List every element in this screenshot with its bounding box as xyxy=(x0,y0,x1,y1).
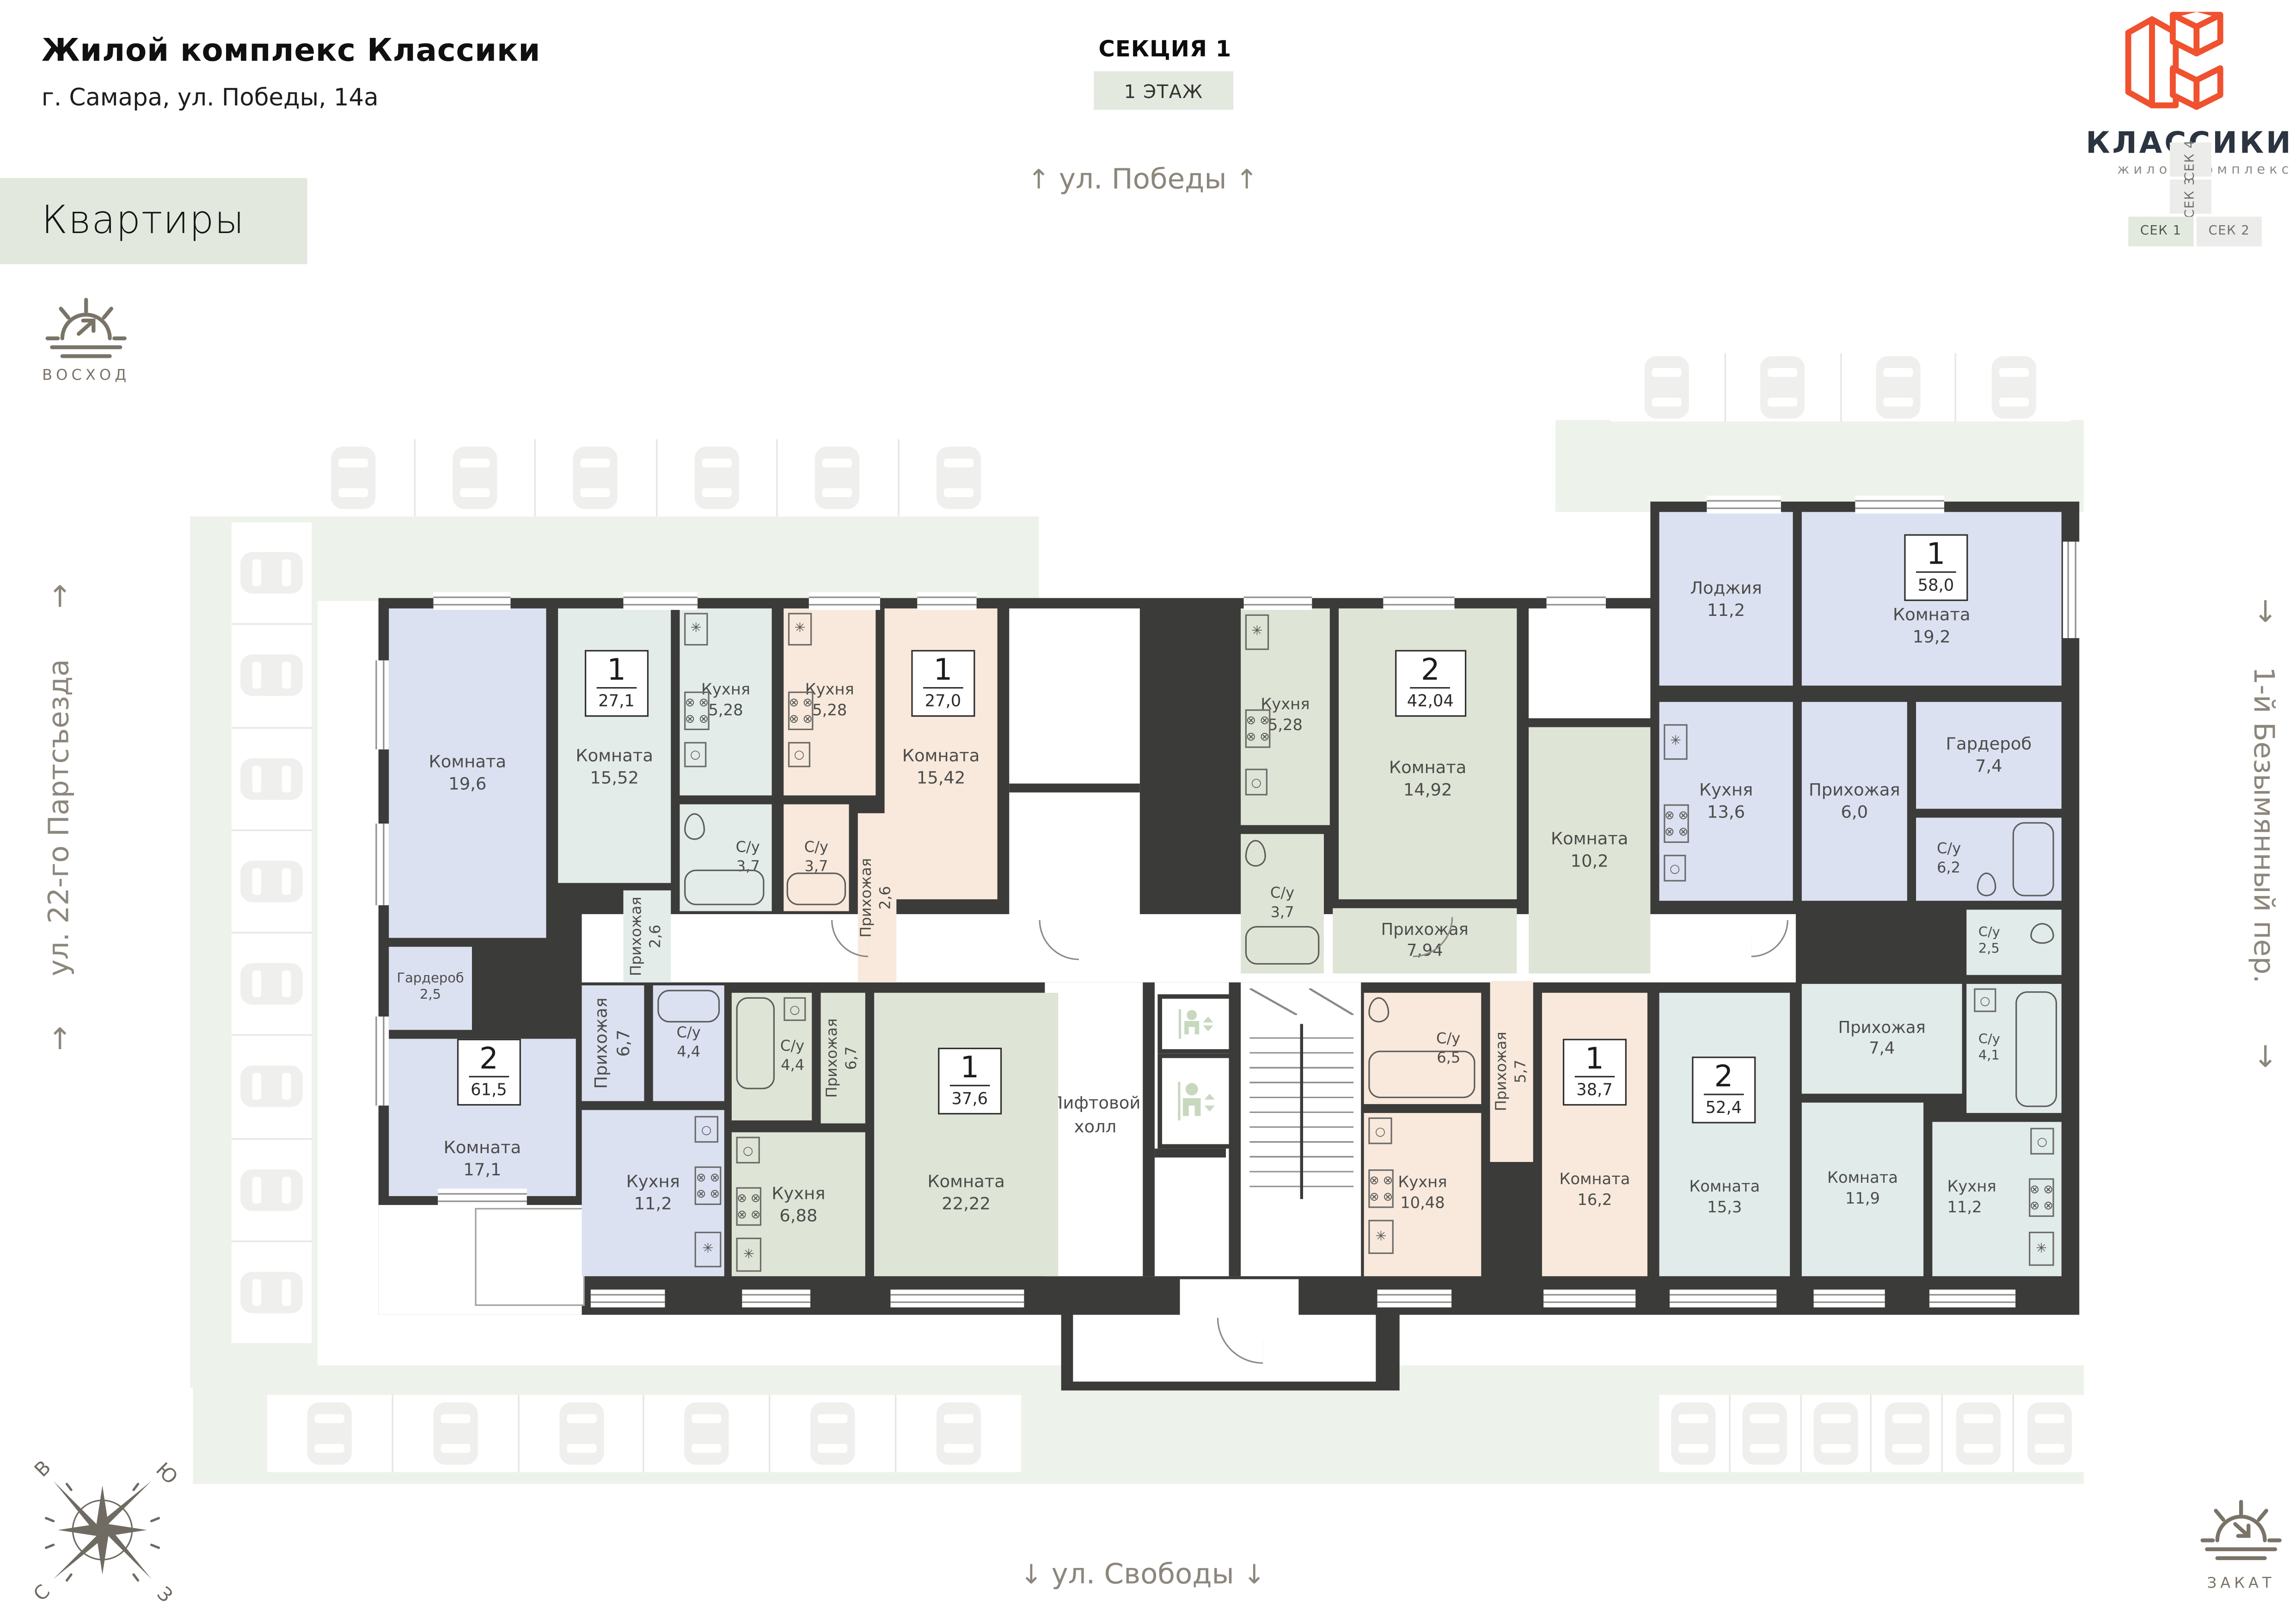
car-icon xyxy=(240,860,303,902)
car-icon xyxy=(1876,356,1920,418)
sink-icon xyxy=(788,742,810,768)
sink-icon xyxy=(1245,769,1267,796)
room-52_4-komnata-11_9[interactable]: Комната 11,9 xyxy=(1802,1103,1923,1277)
car-icon xyxy=(936,447,980,509)
parking-stall xyxy=(232,829,312,932)
street-bottom: ↓ ул. Свободы ↓ xyxy=(950,1558,1336,1591)
car-icon xyxy=(1814,1402,1858,1465)
street-right: 1-й Безымянный пер. xyxy=(2247,617,2280,1033)
utility-room xyxy=(1529,608,1650,719)
elevator-shaft-2 xyxy=(1157,1054,1235,1149)
badge-37_6[interactable]: 1 37,6 xyxy=(938,1048,1001,1114)
bathtub-icon xyxy=(1368,1051,1475,1098)
sink-icon xyxy=(784,997,806,1021)
window xyxy=(2063,541,2081,638)
window xyxy=(1543,1290,1635,1308)
parking-stall xyxy=(643,1395,769,1472)
arrow-down-icon: ↓ xyxy=(2253,1039,2278,1075)
sunset-icon xyxy=(2199,1496,2283,1567)
lift-hall-line2: холл xyxy=(1048,1115,1143,1138)
street-right-label: 1-й Безымянный пер. xyxy=(2247,667,2280,983)
parking-stall xyxy=(267,1395,392,1472)
room-27_1-prihozhaya[interactable]: Прихожая2,6 xyxy=(623,891,671,983)
room-37_6-komnata[interactable]: Комната 22,22 xyxy=(874,993,1058,1276)
section-button-3[interactable]: СЕК 3 xyxy=(2170,179,2211,214)
window xyxy=(623,592,698,610)
stove-icon xyxy=(684,692,710,730)
parking-stall xyxy=(232,1035,312,1137)
room-58_0-lodzhiya[interactable]: Лоджия 11,2 xyxy=(1659,512,1793,686)
car-icon xyxy=(240,963,303,1005)
window xyxy=(742,1290,810,1308)
section-button-2[interactable]: СЕК 2 xyxy=(2197,217,2262,246)
car-icon xyxy=(815,447,859,509)
arrow-up-icon: ↑ xyxy=(48,579,73,614)
stair-wall xyxy=(1229,983,1241,1276)
tab-apartments[interactable]: Квартиры xyxy=(0,178,307,264)
window xyxy=(1244,592,1312,610)
stove-icon xyxy=(1368,1169,1394,1208)
window xyxy=(1813,1290,1885,1308)
floor-badge-label: 1 ЭТАЖ xyxy=(1124,80,1203,102)
parking-stall xyxy=(534,439,655,516)
badge-27_1[interactable]: 1 27,1 xyxy=(585,650,648,717)
window xyxy=(890,1290,1024,1308)
section-button-1-label: СЕК 1 xyxy=(2140,224,2182,239)
parking-stall xyxy=(895,1395,1021,1472)
fridge-icon xyxy=(736,1238,762,1272)
compass-north: С xyxy=(29,1580,54,1605)
parking-stall xyxy=(1659,1395,1729,1472)
room-38_7-prihozhaya[interactable]: Прихожая5,7 xyxy=(1490,981,1533,1162)
window xyxy=(1378,1290,1452,1308)
car-icon xyxy=(240,758,303,799)
shaft-void-1 xyxy=(1249,989,1297,1015)
parking-stall xyxy=(655,439,777,516)
core-wall xyxy=(1143,983,1155,1276)
parking-stall xyxy=(1955,353,2070,422)
fridge-icon xyxy=(788,613,812,646)
stove-icon xyxy=(1245,709,1271,748)
room-37_6-prihozhaya[interactable]: Прихожая6,7 xyxy=(821,993,865,1123)
parking-row-top-middle xyxy=(294,439,1018,516)
car-icon xyxy=(1760,356,1805,418)
entrance-opening xyxy=(1180,1279,1299,1318)
elevator-shaft-1 xyxy=(1157,994,1235,1053)
room-42_04-komnata-2[interactable]: Комната 10,2 xyxy=(1529,727,1650,974)
badge-58_0[interactable]: 1 58,0 xyxy=(1904,534,1967,601)
vestibule-wall xyxy=(1009,784,1140,793)
vestibule xyxy=(1009,608,1140,920)
parking-stall xyxy=(2013,1395,2084,1472)
shaft-void-2 xyxy=(1309,989,1353,1015)
parking-stall xyxy=(1729,1395,1800,1472)
bathtub-icon xyxy=(657,990,720,1023)
lawn-top-middle xyxy=(318,516,1039,601)
bathtub-icon xyxy=(2013,822,2054,896)
parking-stall xyxy=(294,439,413,516)
bathtub-icon xyxy=(736,997,775,1089)
car-icon xyxy=(1645,356,1690,418)
window xyxy=(1855,496,1944,514)
street-left: ул. 22-го Партсъезда xyxy=(43,602,76,1033)
street-top: ↑ ул. Победы ↑ xyxy=(950,163,1336,196)
car-icon xyxy=(1672,1402,1716,1465)
parking-row-bottom-left xyxy=(267,1395,1021,1472)
car-icon xyxy=(433,1402,478,1465)
parking-stall xyxy=(232,624,312,726)
section-button-4[interactable]: СЕК 4 xyxy=(2170,142,2211,177)
arrow-up-icon: ↑ xyxy=(1028,165,1050,196)
parking-stall xyxy=(776,439,897,516)
lift-hall-line1: Лифтовой xyxy=(1048,1092,1143,1115)
bathtub-icon xyxy=(1245,926,1320,965)
window xyxy=(438,1189,527,1207)
window xyxy=(809,592,880,610)
bathtub-icon xyxy=(684,870,764,905)
arrow-up-icon: ↑ xyxy=(48,1021,73,1057)
entrance-porch xyxy=(475,1208,585,1306)
window xyxy=(917,592,976,610)
window xyxy=(1707,496,1781,514)
car-icon xyxy=(1885,1402,1929,1465)
parking-row-bottom-right xyxy=(1659,1395,2084,1472)
arrow-down-icon: ↓ xyxy=(1020,1560,1042,1591)
sink-icon xyxy=(2030,1128,2054,1155)
fridge-icon xyxy=(684,613,708,646)
parking-stall xyxy=(232,726,312,829)
fridge-icon xyxy=(695,1232,722,1267)
parking-row-top-right xyxy=(1610,353,2070,422)
car-icon xyxy=(559,1402,603,1465)
arrow-down-icon: ↓ xyxy=(2253,594,2278,629)
car-icon xyxy=(240,655,303,697)
parking-stall xyxy=(769,1395,895,1472)
bathtub-icon xyxy=(2015,991,2057,1107)
window xyxy=(1670,1290,1776,1308)
car-icon xyxy=(452,447,496,509)
section-button-1[interactable]: СЕК 1 xyxy=(2128,217,2193,246)
bathtub-icon xyxy=(787,872,846,905)
street-bottom-label: ул. Свободы xyxy=(1052,1558,1234,1591)
car-icon xyxy=(331,447,376,509)
window xyxy=(591,1290,665,1308)
car-icon xyxy=(1991,356,2036,418)
sink-icon xyxy=(1664,855,1686,882)
parking-stall xyxy=(1724,353,1840,422)
room-52_4-prihozhaya[interactable]: Прихожая 7,4 xyxy=(1802,984,1962,1094)
stove-icon xyxy=(695,1167,722,1205)
stove-icon xyxy=(1664,805,1689,843)
window xyxy=(371,660,389,750)
floor-badge: 1 ЭТАЖ xyxy=(1094,71,1233,110)
page-address: г. Самара, ул. Победы, 14а xyxy=(42,83,379,111)
badge-38_7[interactable]: 1 38,7 xyxy=(1563,1039,1626,1106)
window xyxy=(434,592,511,610)
window xyxy=(371,823,389,905)
badge-42_04[interactable]: 2 42,04 xyxy=(1395,650,1466,717)
parking-stall xyxy=(897,439,1018,516)
parking-stall xyxy=(517,1395,643,1472)
car-icon xyxy=(811,1402,855,1465)
fridge-icon xyxy=(2029,1232,2054,1266)
parking-stall xyxy=(392,1395,517,1472)
car-icon xyxy=(937,1402,981,1465)
sink-icon xyxy=(695,1116,718,1143)
sink-icon xyxy=(736,1137,760,1163)
parking-stall xyxy=(1840,353,1955,422)
street-top-label: ул. Победы xyxy=(1059,163,1227,196)
badge-27_0[interactable]: 1 27,0 xyxy=(911,650,974,717)
car-icon xyxy=(573,447,618,509)
section-button-2-label: СЕК 2 xyxy=(2209,224,2250,239)
stove-icon xyxy=(736,1187,762,1226)
sink-icon xyxy=(1368,1118,1392,1144)
room-52_4-komnata-15_3[interactable]: Комната 15,3 xyxy=(1659,993,1790,1276)
lawn-top-right xyxy=(1555,420,2084,512)
car-icon xyxy=(240,1169,303,1210)
elevator-icon xyxy=(1177,1008,1215,1040)
arrow-up-icon: ↑ xyxy=(1236,165,1258,196)
car-icon xyxy=(307,1402,351,1465)
car-icon xyxy=(240,1066,303,1108)
room-58_0-prihozhaya[interactable]: Прихожая 6,0 xyxy=(1802,702,1907,901)
parking-stall xyxy=(232,1240,312,1343)
room-58_0-garderob[interactable]: Гардероб 7,4 xyxy=(1916,702,2062,809)
logo-subtitle: жилой комплекс xyxy=(2003,163,2293,178)
sink-icon xyxy=(1974,989,1996,1012)
compass-west: З xyxy=(153,1582,178,1607)
logo-name: КЛАССИКИ xyxy=(2003,125,2293,160)
tab-apartments-label: Квартиры xyxy=(42,199,245,243)
elevator-icon xyxy=(1177,1079,1215,1123)
car-icon xyxy=(240,552,303,594)
room-61_5-prihozhaya[interactable]: Прихожая6,7 xyxy=(582,985,644,1101)
page: Жилой комплекс Классики г. Самара, ул. П… xyxy=(0,0,2296,1622)
section-title: СЕКЦИЯ 1 xyxy=(1054,36,1277,62)
sunset-label: ЗАКАТ xyxy=(2185,1576,2296,1592)
window xyxy=(371,1017,389,1106)
compass-icon: В Ю С З xyxy=(21,1448,184,1611)
window xyxy=(1929,1290,2015,1308)
parking-stall xyxy=(232,932,312,1035)
parking-stall xyxy=(1942,1395,2013,1472)
car-icon xyxy=(1956,1402,2000,1465)
page-title: Жилой комплекс Классики xyxy=(42,33,540,68)
section-button-4-label: СЕК 4 xyxy=(2183,139,2198,180)
shaft-wall xyxy=(1155,1149,1226,1157)
parking-stall xyxy=(1871,1395,1942,1472)
lift-hall-label: Лифтовой холл xyxy=(1048,1092,1143,1138)
sink-icon xyxy=(684,742,706,768)
car-icon xyxy=(685,1402,729,1465)
fridge-icon xyxy=(1368,1220,1394,1254)
room-61_5-garderob[interactable]: Гардероб 2,5 xyxy=(389,947,472,1030)
parking-row-left xyxy=(232,522,312,1343)
parking-stall xyxy=(1610,353,1724,422)
badge-52_4[interactable]: 2 52,4 xyxy=(1692,1057,1755,1123)
parking-stall xyxy=(232,522,312,624)
badge-61_5[interactable]: 2 61,5 xyxy=(457,1039,520,1106)
logo-icon xyxy=(2119,12,2226,122)
stove-icon xyxy=(788,692,814,730)
car-icon xyxy=(694,447,739,509)
parking-stall xyxy=(413,439,534,516)
stove-icon xyxy=(2029,1178,2054,1216)
compass-east: В xyxy=(30,1456,55,1481)
section-button-3-label: СЕК 3 xyxy=(2183,176,2198,217)
parking-stall xyxy=(1800,1395,1871,1472)
fridge-icon xyxy=(1664,724,1687,760)
sunrise-icon xyxy=(44,294,128,365)
fridge-icon xyxy=(1245,614,1269,650)
window xyxy=(1383,592,1454,610)
sunrise-label: ВОСХОД xyxy=(30,368,142,384)
staircase-divider xyxy=(1300,1024,1303,1199)
arrow-down-icon: ↓ xyxy=(1243,1560,1265,1591)
room-61_5-komnata-19_6[interactable]: Комната 19,6 xyxy=(389,608,546,938)
car-icon xyxy=(1743,1402,1787,1465)
car-icon xyxy=(2027,1402,2071,1465)
room-27_0-prihozhaya[interactable]: Прихожая2,6 xyxy=(858,813,896,983)
parking-stall xyxy=(232,1137,312,1240)
compass-south: Ю xyxy=(152,1458,183,1488)
car-icon xyxy=(240,1272,303,1313)
room-38_7-komnata[interactable]: Комната 16,2 xyxy=(1542,993,1647,1276)
window xyxy=(1547,592,1606,610)
street-left-label: ул. 22-го Партсъезда xyxy=(43,659,76,977)
